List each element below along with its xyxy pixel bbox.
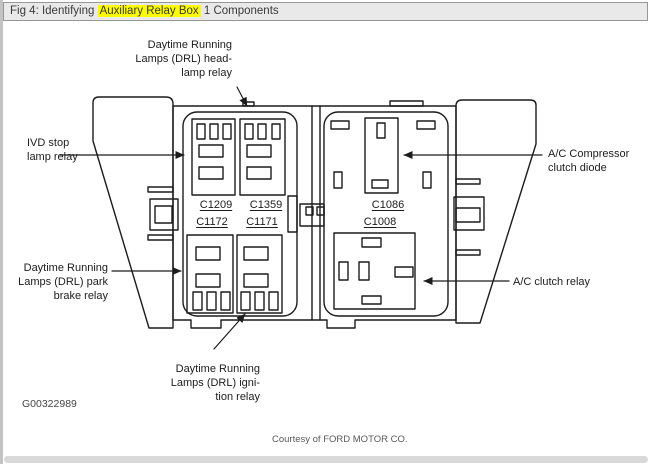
label-drl-park-brake-relay: Daytime Running Lamps (DRL) park brake r… <box>4 261 108 303</box>
horizontal-scrollbar[interactable] <box>4 456 648 463</box>
left-relay-section <box>183 112 297 316</box>
connector-label-c1008: C1008 <box>364 216 396 228</box>
connector-label-c1359: C1359 <box>250 199 282 211</box>
callout-arrows <box>60 87 542 349</box>
connector-c1359-drawing <box>240 119 285 195</box>
connector-c1172-drawing <box>187 235 233 313</box>
right-relay-section <box>324 112 448 316</box>
label-ac-compressor-clutch-diode: A/C Compressor clutch diode <box>548 147 648 175</box>
label-drl-headlamp-relay: Daytime Running Lamps (DRL) head- lamp r… <box>118 38 232 80</box>
label-drl-ignition-relay: Daytime Running Lamps (DRL) igni- tion r… <box>148 362 260 404</box>
connector-label-c1171: C1171 <box>246 216 278 228</box>
connector-c1209-drawing <box>192 119 235 195</box>
connector-label-c1209: C1209 <box>200 199 232 211</box>
figure-page: Fig 4: Identifying Auxiliary Relay Box 1… <box>0 0 650 464</box>
label-ivd-stop-lamp-relay: IVD stop lamp relay <box>27 136 107 164</box>
arrow-drl-ignition <box>214 314 245 349</box>
label-ac-clutch-relay: A/C clutch relay <box>513 275 623 289</box>
connector-label-c1086: C1086 <box>372 199 404 211</box>
arrow-drl-headlamp <box>237 87 247 106</box>
right-wing <box>454 100 536 323</box>
center-divider <box>288 106 324 320</box>
relay-c1008-drawing <box>334 233 415 309</box>
relay-box-line-drawing <box>0 0 650 464</box>
connector-label-c1172: C1172 <box>196 216 228 228</box>
connector-c1171-drawing <box>237 235 282 313</box>
courtesy-note: Courtesy of FORD MOTOR CO. <box>272 434 407 445</box>
figure-id: G00322989 <box>22 398 77 410</box>
